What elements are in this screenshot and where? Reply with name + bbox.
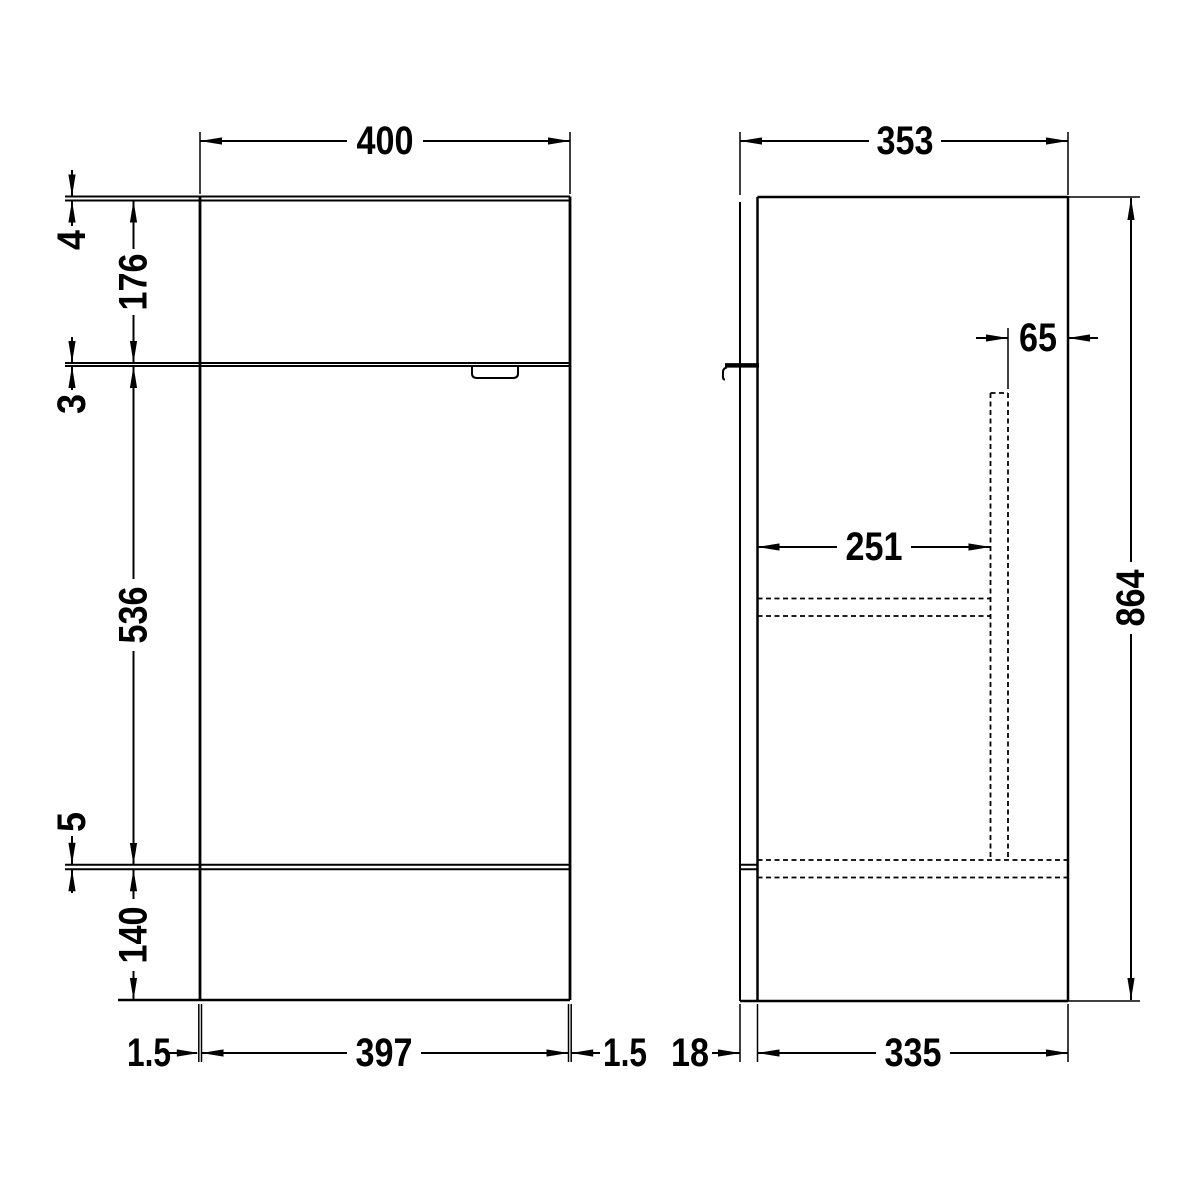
dim-top-section-height: 176 (112, 254, 156, 311)
technical-drawing: 400 353 4 176 3 536 5 140 1.5 397 1.5 18… (0, 0, 1200, 1200)
dim-bottom-gap: 5 (50, 812, 94, 832)
dim-door-height: 536 (112, 587, 156, 644)
dim-right-inset: 1.5 (603, 1031, 647, 1075)
extension-lines (199, 132, 1140, 1062)
dim-front-panel-thickness: 18 (671, 1031, 709, 1075)
dim-side-depth: 353 (877, 119, 934, 163)
dimension-arrows (68, 137, 1134, 1056)
dim-overall-height: 864 (1109, 569, 1153, 627)
handle-recess-front (472, 366, 518, 378)
dim-internal-depth: 251 (846, 525, 903, 569)
dim-carcass-depth: 335 (885, 1031, 942, 1075)
drawing-canvas: 400 353 4 176 3 536 5 140 1.5 397 1.5 18… (0, 0, 1200, 1200)
dim-rear-void: 65 (1019, 316, 1057, 360)
dim-plinth-height: 140 (112, 907, 156, 964)
dim-plinth-width: 397 (356, 1031, 413, 1075)
dim-front-width: 400 (357, 119, 414, 163)
handle-recess-side-hook (723, 368, 727, 380)
dimension-labels: 400 353 4 176 3 536 5 140 1.5 397 1.5 18… (50, 119, 1153, 1075)
dimension-lines (72, 141, 1131, 1053)
dim-left-inset: 1.5 (127, 1031, 171, 1075)
side-view-hidden-lines (758, 393, 1069, 878)
dim-top-gap: 3 (50, 394, 94, 414)
dim-worktop-thickness: 4 (50, 229, 94, 250)
